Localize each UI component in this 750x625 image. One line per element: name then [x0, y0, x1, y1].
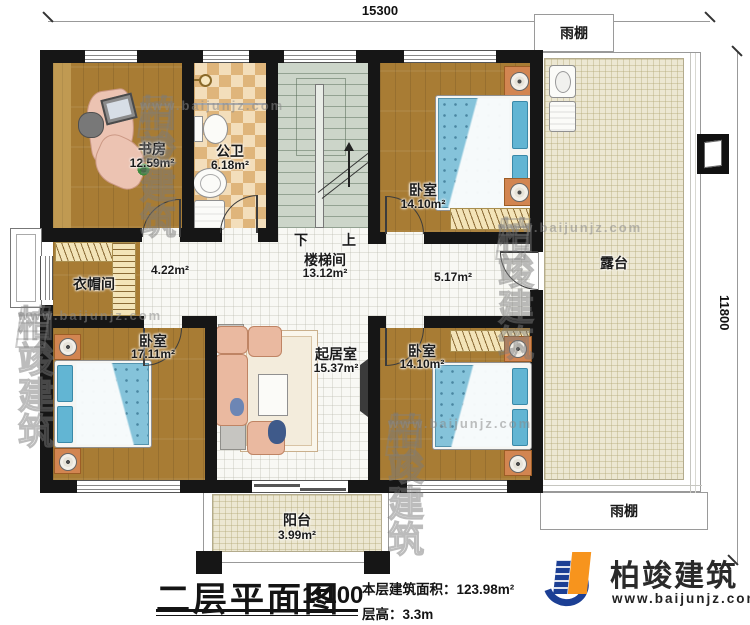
wall-h1 [258, 228, 278, 242]
balcony-label: 阳台 [204, 510, 390, 530]
pillow [57, 406, 73, 443]
balcony: 阳台 3.99m² [203, 487, 389, 563]
wall-h1 [40, 228, 142, 242]
window [284, 50, 356, 63]
hallway-right-area: 5.17m² [423, 270, 483, 284]
pillow [57, 365, 73, 402]
toilet-tank [194, 116, 203, 142]
sliding-door [252, 480, 348, 493]
dimension-right-label: 11800 [710, 283, 732, 343]
terrace-railing-line [690, 53, 691, 493]
sofa-corner [215, 326, 248, 354]
cloakroom-label: 衣帽间 [48, 274, 140, 294]
bed-sheet [76, 363, 149, 445]
pillow [512, 409, 528, 446]
window [404, 50, 496, 63]
bedroom-top-right-area: 14.10m² [390, 197, 456, 211]
sink-basin [555, 71, 571, 93]
sink-basin [200, 174, 221, 193]
wall-bath-stair [266, 63, 278, 232]
wall-living-bedroom [368, 316, 380, 480]
lamp [59, 453, 77, 471]
canopy-bottom-label: 雨棚 [610, 501, 638, 521]
stair-arrow-line [348, 151, 350, 187]
terrace: 露台 [538, 52, 701, 492]
terrace-railing-line [539, 485, 702, 486]
shower-head [199, 74, 212, 87]
person-figure [230, 398, 244, 416]
balcony-pillar [196, 551, 222, 574]
nightstand [54, 448, 81, 474]
terrace-door-leaf [500, 251, 538, 253]
sliding-door-leaf [300, 488, 346, 491]
wall-bedroom-living [205, 316, 217, 480]
wall-stair-bedroom [368, 63, 380, 236]
cloakroom-rack-top [55, 242, 117, 262]
wall-h4 [424, 316, 543, 328]
stair-divider [315, 84, 324, 228]
title-underline [156, 615, 358, 616]
hallway-left-area: 4.22m² [140, 263, 200, 277]
wall-h1 [180, 228, 222, 242]
lamp [509, 340, 527, 358]
lamp [59, 338, 77, 356]
window [407, 480, 507, 493]
wall-left [40, 305, 53, 493]
canopy-top: 雨棚 [534, 14, 614, 52]
balcony-pillar [364, 551, 390, 574]
canopy-top-label: 雨棚 [560, 23, 588, 43]
canopy-bottom: 雨棚 [540, 492, 708, 530]
bathroom-door-leaf [256, 195, 258, 233]
coffee-table [258, 374, 288, 416]
wardrobe [450, 208, 530, 230]
bed-sheet [435, 365, 511, 447]
terrace-window-box [697, 134, 729, 174]
sofa-top-seat [248, 326, 282, 357]
pillow [512, 368, 528, 405]
dimension-line-right [737, 52, 738, 564]
stair-down-label: 下 [288, 230, 314, 250]
wall-right [530, 50, 543, 252]
brand-logo [543, 550, 605, 610]
floor-area-note: 本层建筑面积：123.98m² [362, 578, 514, 598]
sofa-long [215, 354, 248, 426]
floor-plan: 15300 11800 雨棚 雨棚 露台 阳台 3.99m² [0, 0, 750, 625]
pillow [512, 101, 528, 149]
bay-window-inner [16, 234, 36, 302]
floor-height-note: 层高：3.3m [362, 603, 433, 623]
terrace-window-glass [704, 140, 722, 168]
nightstand [54, 334, 81, 360]
stair-up-label: 上 [336, 230, 362, 250]
window [203, 50, 249, 63]
person-figure [268, 420, 286, 444]
wall-h3 [40, 316, 144, 328]
balcony-area: 3.99m² [204, 528, 390, 542]
study-floor-edge [53, 63, 71, 228]
lamp [510, 72, 529, 91]
wall-h2 [368, 232, 386, 244]
terrace-sink [549, 65, 576, 98]
side-table [220, 424, 246, 450]
window [77, 480, 180, 493]
wall-left [40, 50, 53, 232]
bedroom-bottom-right-area: 14.10m² [389, 357, 455, 371]
lamp [509, 455, 527, 473]
living-room-area: 15.37m² [303, 361, 369, 375]
bedroom-top-right-door-leaf [385, 196, 387, 234]
stair-arrow-head [344, 142, 354, 151]
study-area: 12.59m² [118, 156, 186, 170]
window [85, 50, 137, 63]
bay-window [10, 228, 42, 308]
monitor-screen [106, 99, 131, 120]
title-underline [156, 609, 358, 612]
sliding-door-leaf [254, 484, 300, 487]
bedroom-bottom-left-area: 17.11m² [121, 347, 185, 361]
brand-name: 柏竣建筑 [610, 551, 738, 595]
nightstand [504, 336, 532, 362]
stairwell-area: 13.12m² [292, 266, 358, 280]
terrace-label: 露台 [539, 253, 689, 273]
shower-partition [194, 103, 266, 105]
bathroom-area: 6.18m² [200, 158, 260, 172]
office-chair [78, 112, 104, 138]
study-door-leaf [179, 199, 181, 237]
plan-scale: 1:100 [302, 582, 363, 610]
brand-website: www.baijunjz.com [612, 591, 750, 606]
lamp [510, 183, 529, 202]
bedroom-bottom-right-door-leaf [385, 328, 387, 366]
nightstand [504, 450, 532, 476]
terrace-railing-line [695, 53, 696, 493]
wall-h2 [424, 232, 543, 244]
bathroom-sink [193, 168, 227, 198]
terrace-washer [549, 101, 576, 132]
dimension-top-label: 15300 [330, 3, 430, 18]
toilet-bowl [203, 114, 228, 144]
